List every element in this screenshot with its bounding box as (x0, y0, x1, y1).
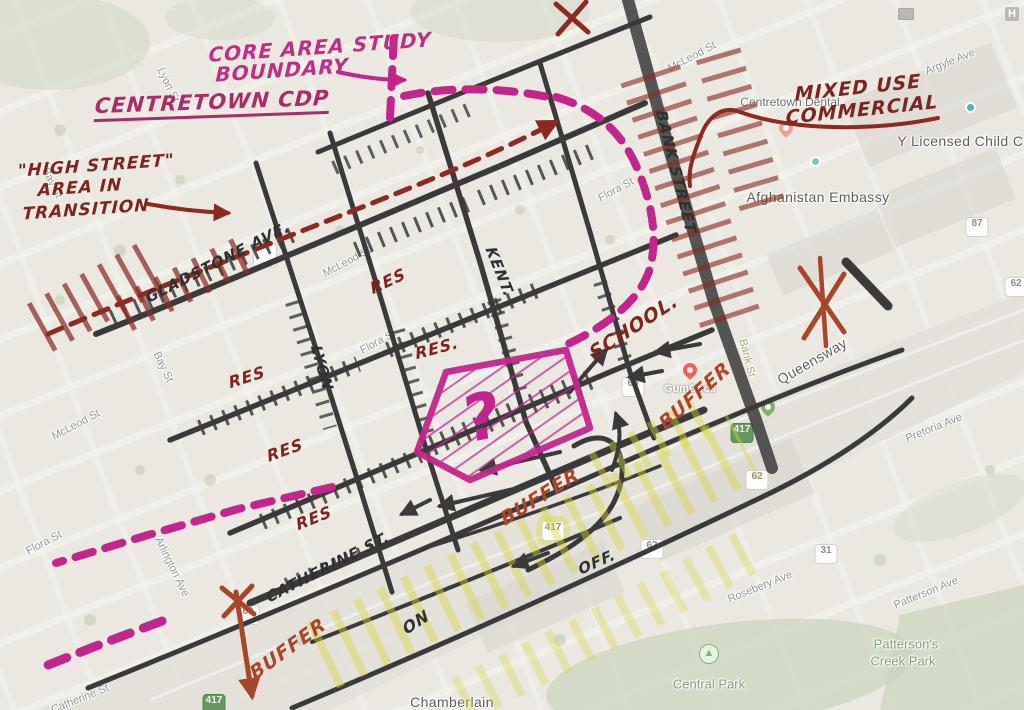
flow-arrow (630, 371, 662, 377)
cdp-boundary (38, 621, 162, 669)
x-mark-right (820, 258, 826, 346)
street-top (318, 17, 650, 152)
map-canvas[interactable]: Lyon StBay StBay StMcLeod StMcLeod StMcL… (0, 0, 1024, 710)
high-street-arrow (148, 204, 228, 213)
hand-sketch-layer (0, 0, 1024, 710)
rail-mark (846, 262, 888, 306)
question-block-outline (417, 350, 590, 480)
mixed-use-swoosh (689, 110, 938, 186)
lot-ticks (480, 148, 600, 198)
street-bay-sketch (256, 163, 392, 592)
cdp-boundary (390, 34, 394, 118)
flow-arrow (402, 500, 430, 514)
cdp-boundary (404, 89, 548, 97)
lot-ticks (292, 302, 330, 428)
street-bank-sketch (628, 0, 772, 468)
cdp-boundary (56, 487, 332, 563)
lot-ticks (356, 203, 470, 250)
hatch-bank-east (718, 54, 766, 218)
